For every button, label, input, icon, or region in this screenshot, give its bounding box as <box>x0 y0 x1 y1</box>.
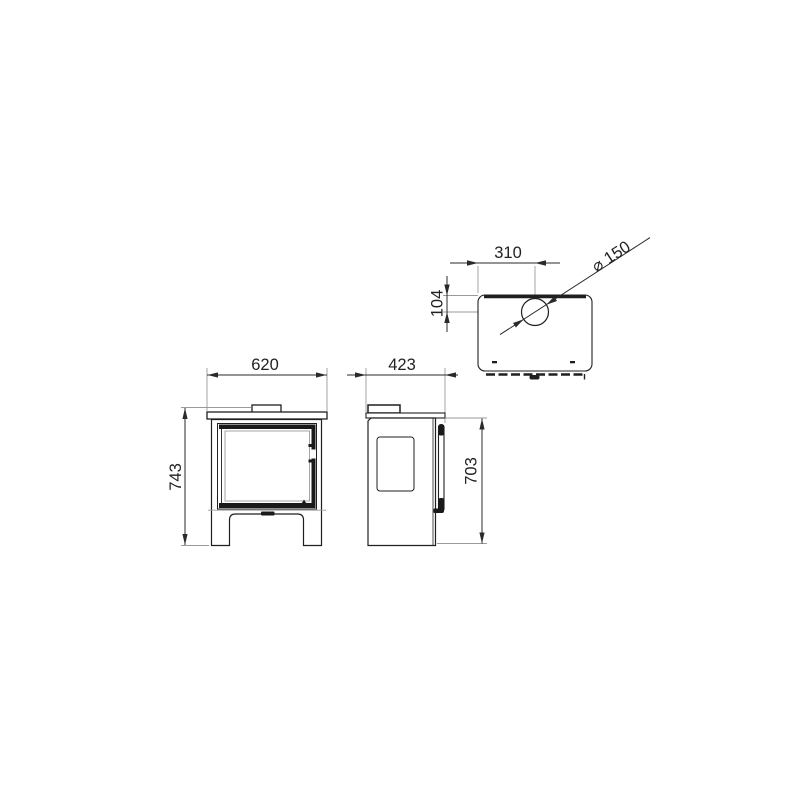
front-hinge-pin-bottom <box>309 460 312 463</box>
technical-drawing-canvas: 310 104 ⌀ 150 <box>0 0 800 800</box>
dim-flue-diameter-label: ⌀ 150 <box>589 238 634 276</box>
arrowhead <box>182 408 187 419</box>
arrowhead <box>355 372 366 377</box>
top-view-screw-right <box>570 361 575 363</box>
front-top-plate <box>207 412 327 419</box>
front-door-latch <box>261 512 275 516</box>
top-view-screw-left <box>492 361 497 363</box>
door-handle-foot <box>434 509 442 514</box>
arrowhead <box>535 260 546 265</box>
front-hinge-pin-top <box>309 444 312 447</box>
dimension-side-height: 703 <box>463 419 485 544</box>
door-handle-top-bracket <box>439 425 445 436</box>
arrowhead <box>445 372 456 377</box>
dimension-side-depth: 423 <box>347 356 458 378</box>
side-window <box>377 437 414 491</box>
dim-side-depth-label: 423 <box>388 356 416 374</box>
front-door-top-band <box>219 425 316 430</box>
front-door-frame <box>218 424 317 510</box>
top-view-latch <box>530 375 540 380</box>
arrowhead <box>208 372 219 377</box>
arrowhead <box>479 533 484 544</box>
front-hinge-gap <box>311 450 316 459</box>
arrowhead <box>316 372 327 377</box>
dimension-flue-offset-x: 310 <box>450 244 560 266</box>
dimension-flue-offset-y: 104 <box>429 276 450 332</box>
side-view <box>366 368 487 546</box>
front-door-hinge-band <box>312 425 316 509</box>
side-flue-collar <box>368 405 400 413</box>
arrowhead <box>467 260 478 265</box>
dim-flue-offset-y-label: 104 <box>429 290 447 318</box>
arrowhead <box>182 534 187 545</box>
dimension-front-width: 620 <box>207 356 327 378</box>
stove-dimension-drawing: 310 104 ⌀ 150 <box>0 0 800 800</box>
front-view <box>181 368 327 546</box>
dim-flue-offset-x-label: 310 <box>494 244 522 262</box>
arrowhead <box>479 419 484 430</box>
dim-front-height-label: 743 <box>167 463 185 491</box>
dimension-front-height: 743 <box>167 408 188 545</box>
logo-base <box>297 505 310 507</box>
dim-front-width-label: 620 <box>251 356 279 374</box>
side-top-plate <box>366 413 445 418</box>
dim-side-height-label: 703 <box>463 457 481 485</box>
